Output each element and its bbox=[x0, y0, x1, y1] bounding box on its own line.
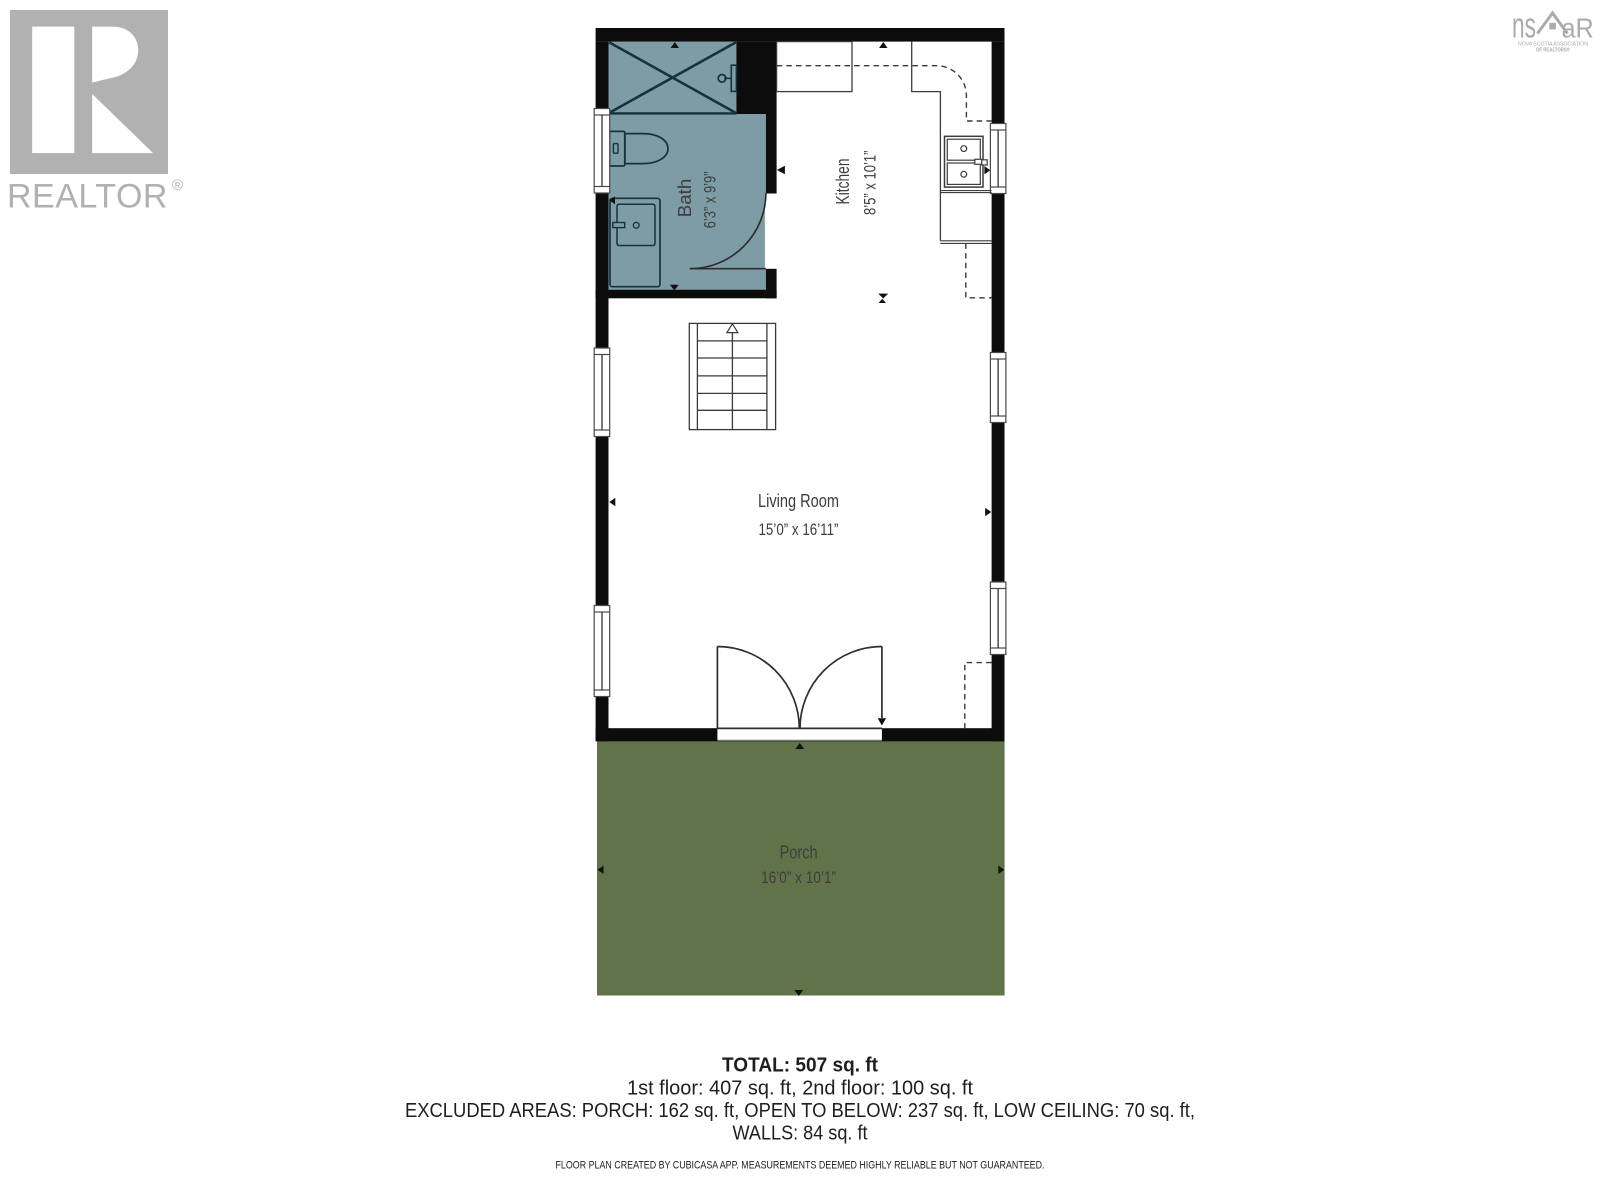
svg-text:Porch: Porch bbox=[780, 843, 818, 863]
svg-text:FLOOR PLAN CREATED BY CUBICASA: FLOOR PLAN CREATED BY CUBICASA APP. MEAS… bbox=[556, 1160, 1045, 1172]
svg-text:EXCLUDED AREAS: PORCH: 162 sq.: EXCLUDED AREAS: PORCH: 162 sq. ft, OPEN … bbox=[405, 1100, 1195, 1122]
svg-text:WALLS: 84 sq. ft: WALLS: 84 sq. ft bbox=[733, 1123, 868, 1145]
svg-text:TOTAL: 507 sq. ft: TOTAL: 507 sq. ft bbox=[722, 1054, 878, 1076]
svg-text:1st floor: 407 sq. ft, 2nd flo: 1st floor: 407 sq. ft, 2nd floor: 100 sq… bbox=[627, 1078, 973, 1100]
svg-text:ns: ns bbox=[1512, 6, 1536, 46]
svg-text:REALTOR: REALTOR bbox=[7, 178, 168, 216]
svg-text:Living Room: Living Room bbox=[758, 491, 839, 511]
svg-text:6’3” x 9’9”: 6’3” x 9’9” bbox=[702, 171, 720, 228]
svg-text:Kitchen: Kitchen bbox=[833, 159, 853, 205]
svg-text:8’5” x 10’1”: 8’5” x 10’1” bbox=[862, 151, 880, 216]
svg-text:15’0” x 16’11”: 15’0” x 16’11” bbox=[759, 521, 839, 539]
svg-text:16’0” x 10’1”: 16’0” x 10’1” bbox=[761, 869, 836, 887]
svg-text:Bath: Bath bbox=[675, 179, 695, 218]
svg-text:®: ® bbox=[172, 177, 183, 194]
svg-text:aR: aR bbox=[1562, 13, 1594, 44]
svg-text:OF REALTORS®: OF REALTORS® bbox=[1536, 47, 1570, 54]
